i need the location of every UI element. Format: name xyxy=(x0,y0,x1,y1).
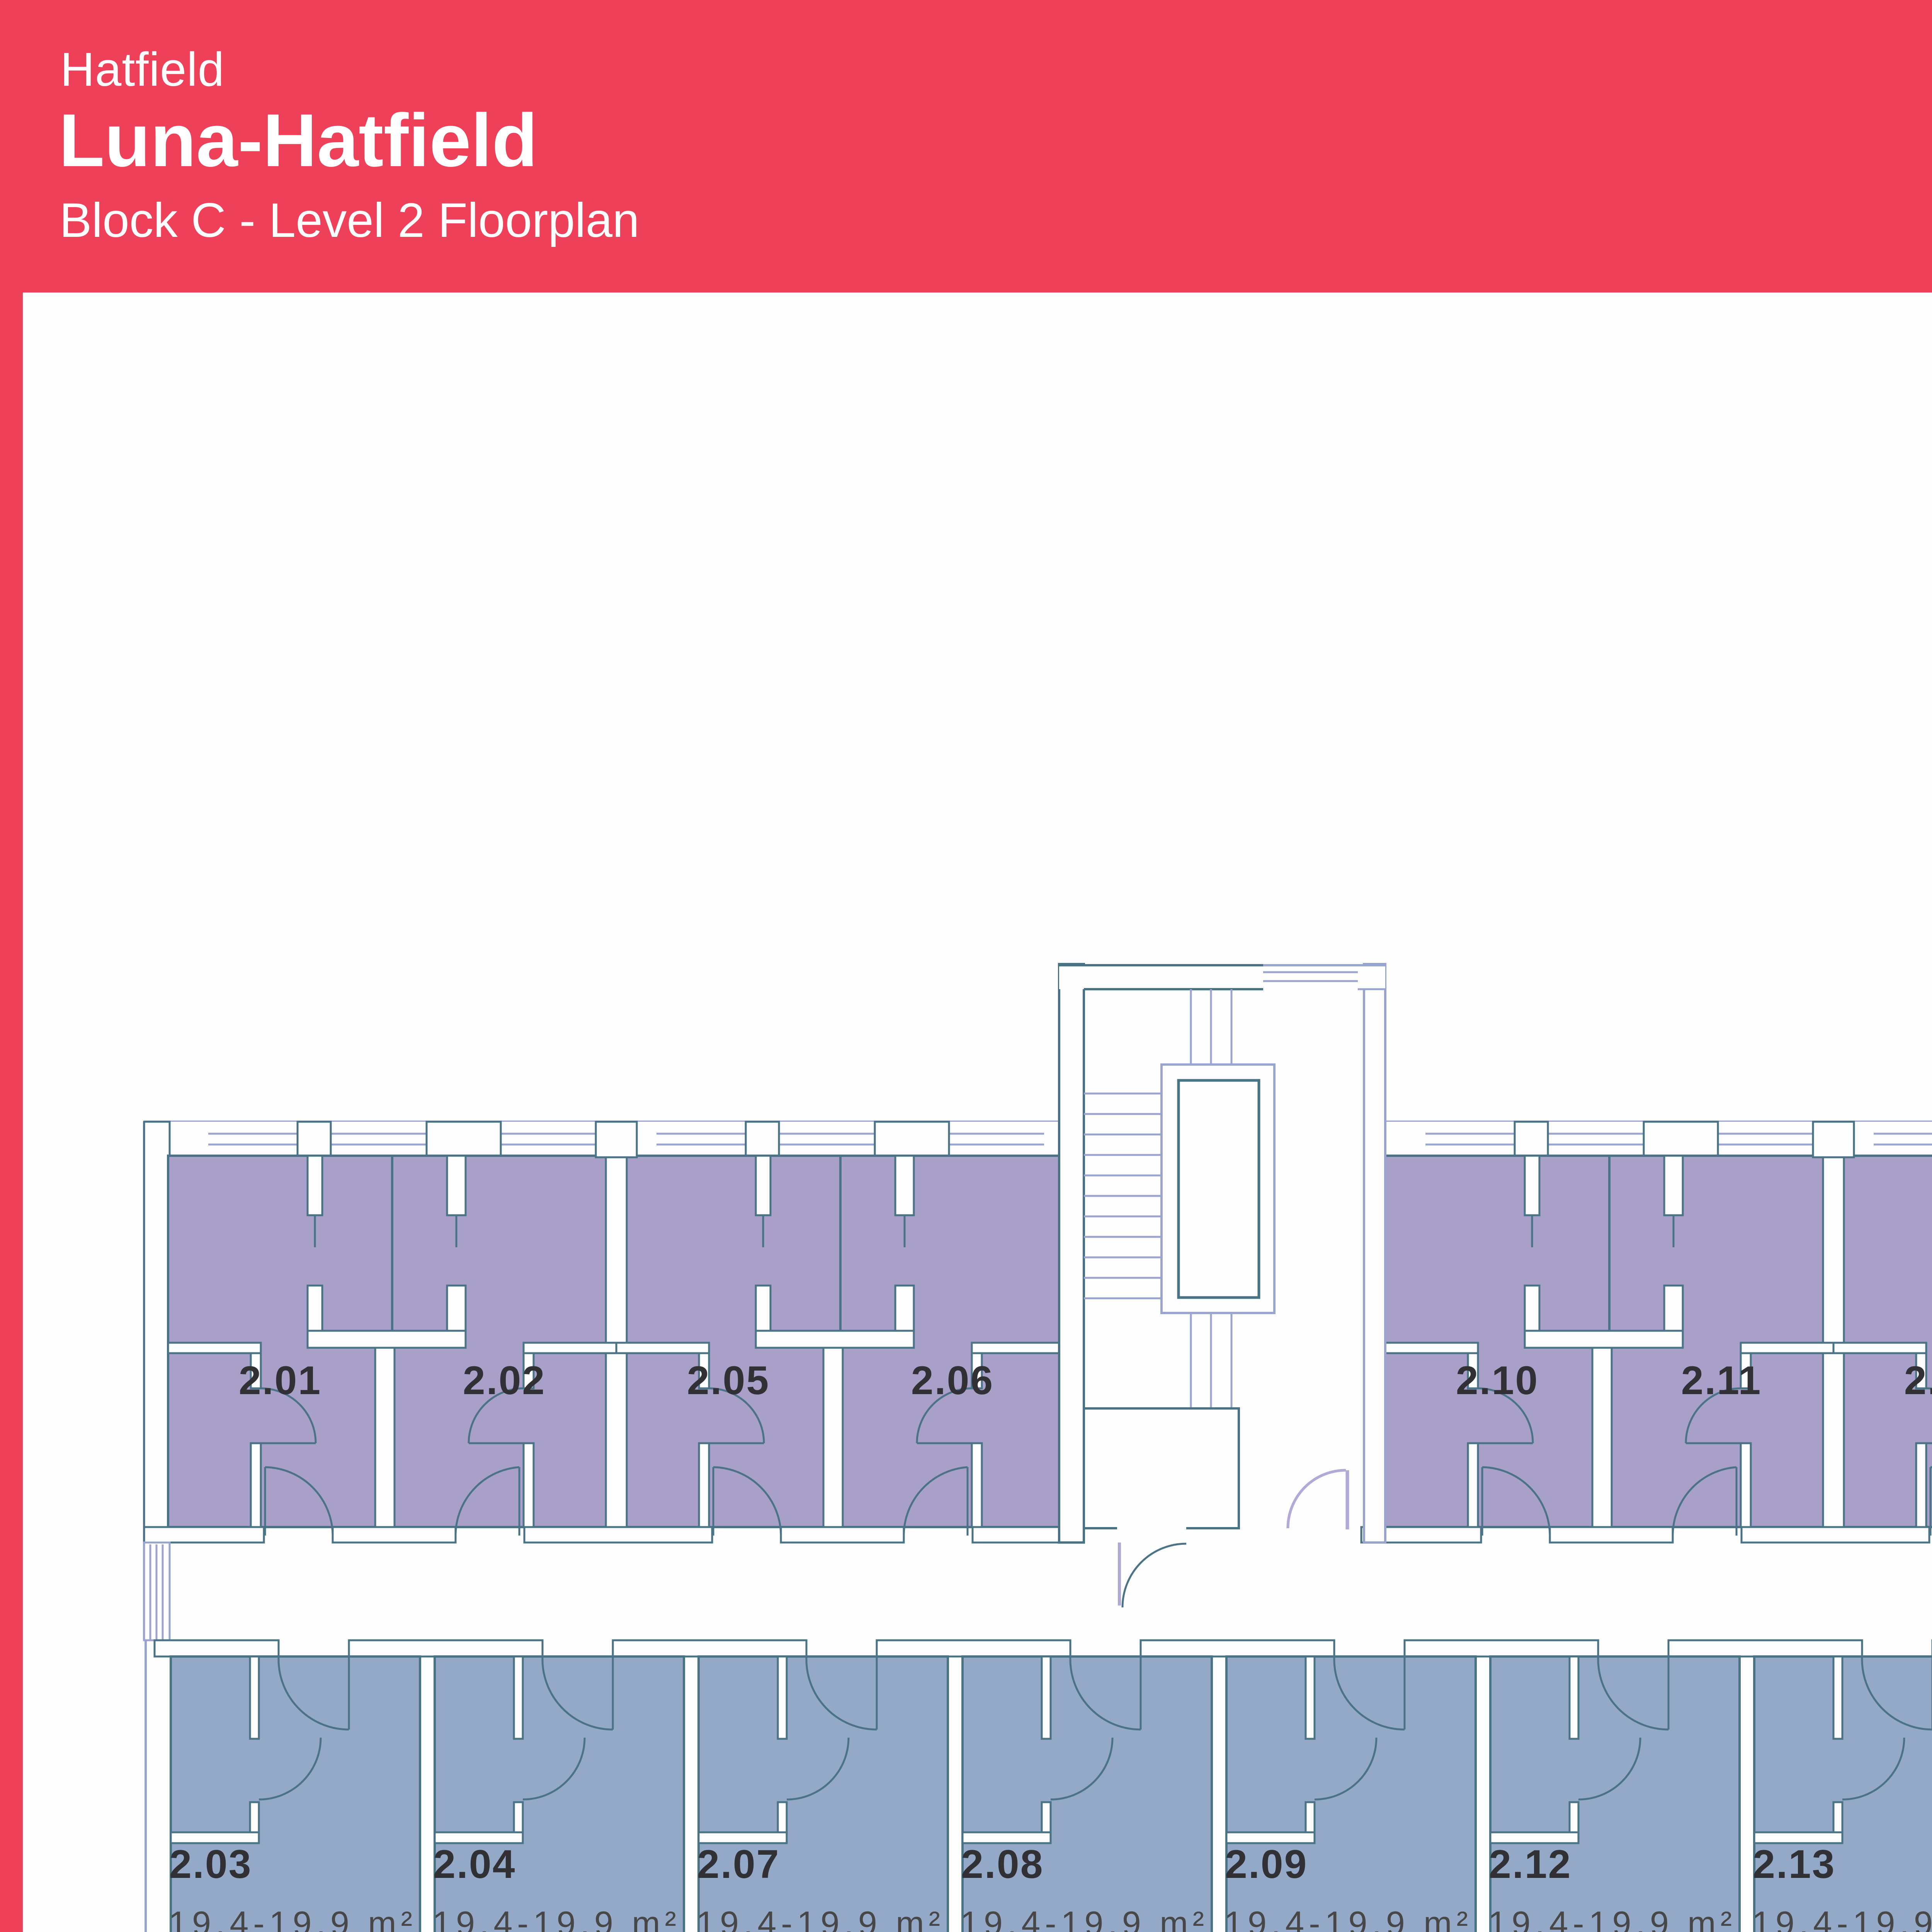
svg-text:2.06: 2.06 xyxy=(911,1358,994,1403)
svg-text:19.4-19.9 m²: 19.4-19.9 m² xyxy=(696,1904,945,1932)
svg-text:2.05: 2.05 xyxy=(687,1358,770,1403)
svg-text:19.4-19.9 m²: 19.4-19.9 m² xyxy=(168,1904,417,1932)
svg-text:2.01: 2.01 xyxy=(239,1358,321,1403)
svg-text:2.07: 2.07 xyxy=(697,1842,780,1887)
svg-text:Block C - Level 2 Floorplan: Block C - Level 2 Floorplan xyxy=(60,194,639,247)
svg-text:2.08: 2.08 xyxy=(961,1842,1044,1887)
svg-text:2.02: 2.02 xyxy=(463,1358,546,1403)
svg-text:Luna-Hatfield: Luna-Hatfield xyxy=(59,99,537,182)
svg-text:2.10: 2.10 xyxy=(1456,1358,1539,1403)
svg-text:2.14: 2.14 xyxy=(1904,1358,1932,1403)
svg-text:2.13: 2.13 xyxy=(1753,1842,1835,1887)
svg-text:2.03: 2.03 xyxy=(169,1842,252,1887)
svg-text:19.4-19.9 m²: 19.4-19.9 m² xyxy=(1224,1904,1473,1932)
svg-text:19.4-19.9 m²: 19.4-19.9 m² xyxy=(1488,1904,1736,1932)
svg-text:19.4-19.9 m²: 19.4-19.9 m² xyxy=(432,1904,681,1932)
svg-text:2.04: 2.04 xyxy=(433,1842,516,1887)
svg-text:2.11: 2.11 xyxy=(1681,1358,1762,1403)
svg-text:Hatfield: Hatfield xyxy=(60,43,224,96)
svg-text:19.4-19.9 m²: 19.4-19.9 m² xyxy=(960,1904,1209,1932)
svg-text:2.12: 2.12 xyxy=(1489,1842,1571,1887)
svg-text:2.09: 2.09 xyxy=(1225,1842,1308,1887)
svg-text:19.4-19.9 m²: 19.4-19.9 m² xyxy=(1752,1904,1932,1932)
